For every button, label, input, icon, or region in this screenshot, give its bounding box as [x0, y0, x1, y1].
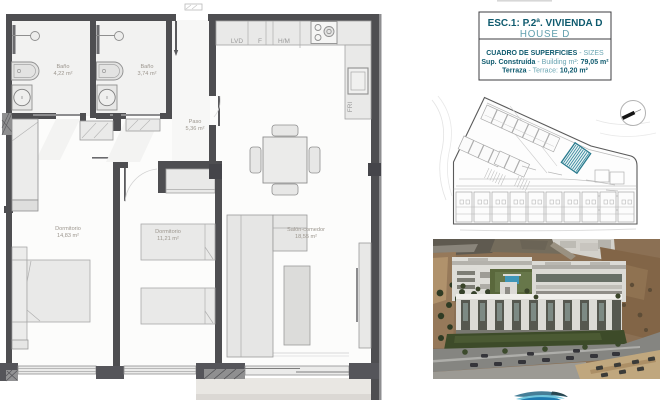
svg-text:Dormitorio: Dormitorio	[55, 226, 81, 232]
svg-text:HOUSE D: HOUSE D	[520, 29, 570, 40]
svg-text:3,74 m²: 3,74 m²	[138, 71, 157, 77]
svg-text:Terraza - Terrace: 10,20 m²: Terraza - Terrace: 10,20 m²	[502, 68, 588, 75]
svg-text:H/M: H/M	[278, 38, 290, 45]
svg-text:FRI: FRI	[347, 102, 354, 113]
svg-text:Baño: Baño	[140, 64, 153, 70]
svg-text:Baño: Baño	[56, 64, 69, 70]
svg-text:Sup. Construída - Building m²:: Sup. Construída - Building m²: 79,05 m²	[481, 59, 609, 66]
svg-text:Paso: Paso	[189, 119, 202, 125]
svg-text:CUADRO DE SUPERFICIES - SIZES: CUADRO DE SUPERFICIES - SIZES	[486, 50, 604, 57]
svg-text:F: F	[258, 38, 262, 45]
svg-text:Dormitorio: Dormitorio	[155, 229, 181, 235]
svg-text:11,21 m²: 11,21 m²	[157, 236, 179, 242]
svg-text:LVD: LVD	[231, 38, 243, 45]
svg-text:Salón-comedor: Salón-comedor	[287, 227, 325, 233]
svg-text:5,36 m²: 5,36 m²	[186, 126, 205, 132]
svg-text:18,55 m²: 18,55 m²	[295, 234, 317, 240]
svg-text:ESC.1: P.2ª. VIVIENDA D: ESC.1: P.2ª. VIVIENDA D	[488, 18, 603, 29]
svg-text:14,83 m²: 14,83 m²	[57, 233, 79, 239]
svg-text:4,22 m²: 4,22 m²	[54, 71, 73, 77]
